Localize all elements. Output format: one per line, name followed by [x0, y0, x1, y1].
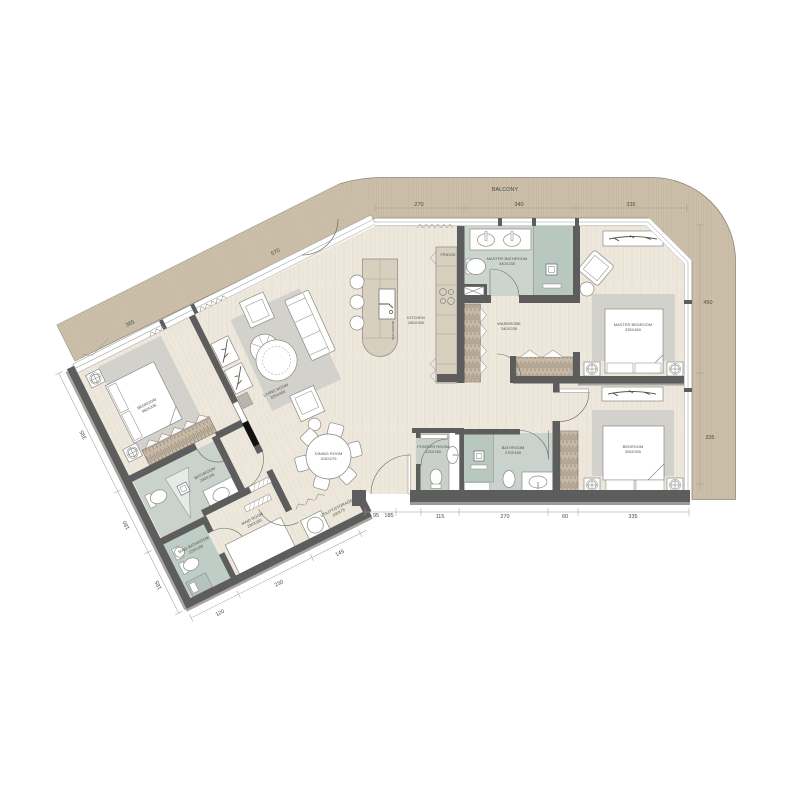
svg-text:95: 95 [373, 513, 379, 519]
svg-text:270: 270 [500, 514, 509, 520]
svg-text:340: 340 [514, 202, 523, 208]
svg-text:185: 185 [384, 513, 393, 519]
svg-text:335X460: 335X460 [625, 327, 642, 332]
svg-text:340X235: 340X235 [499, 261, 516, 266]
svg-text:280X390: 280X390 [408, 320, 425, 325]
svg-text:270X180: 270X180 [505, 450, 522, 455]
svg-text:125X180: 125X180 [425, 449, 442, 454]
svg-text:60: 60 [562, 514, 568, 520]
svg-text:335: 335 [705, 435, 714, 441]
svg-text:315X275: 315X275 [320, 456, 337, 461]
svg-text:270: 270 [414, 202, 423, 208]
svg-text:340X235: 340X235 [501, 326, 518, 331]
svg-text:335: 335 [628, 514, 637, 520]
svg-text:BALCONY: BALCONY [492, 187, 519, 193]
svg-text:450: 450 [703, 300, 712, 306]
svg-text:115: 115 [436, 514, 445, 520]
svg-text:BAR COUNTER: BAR COUNTER [391, 320, 395, 339]
svg-text:FRIDGE: FRIDGE [440, 252, 455, 257]
svg-text:305X335: 305X335 [625, 449, 642, 454]
svg-text:335: 335 [626, 202, 635, 208]
